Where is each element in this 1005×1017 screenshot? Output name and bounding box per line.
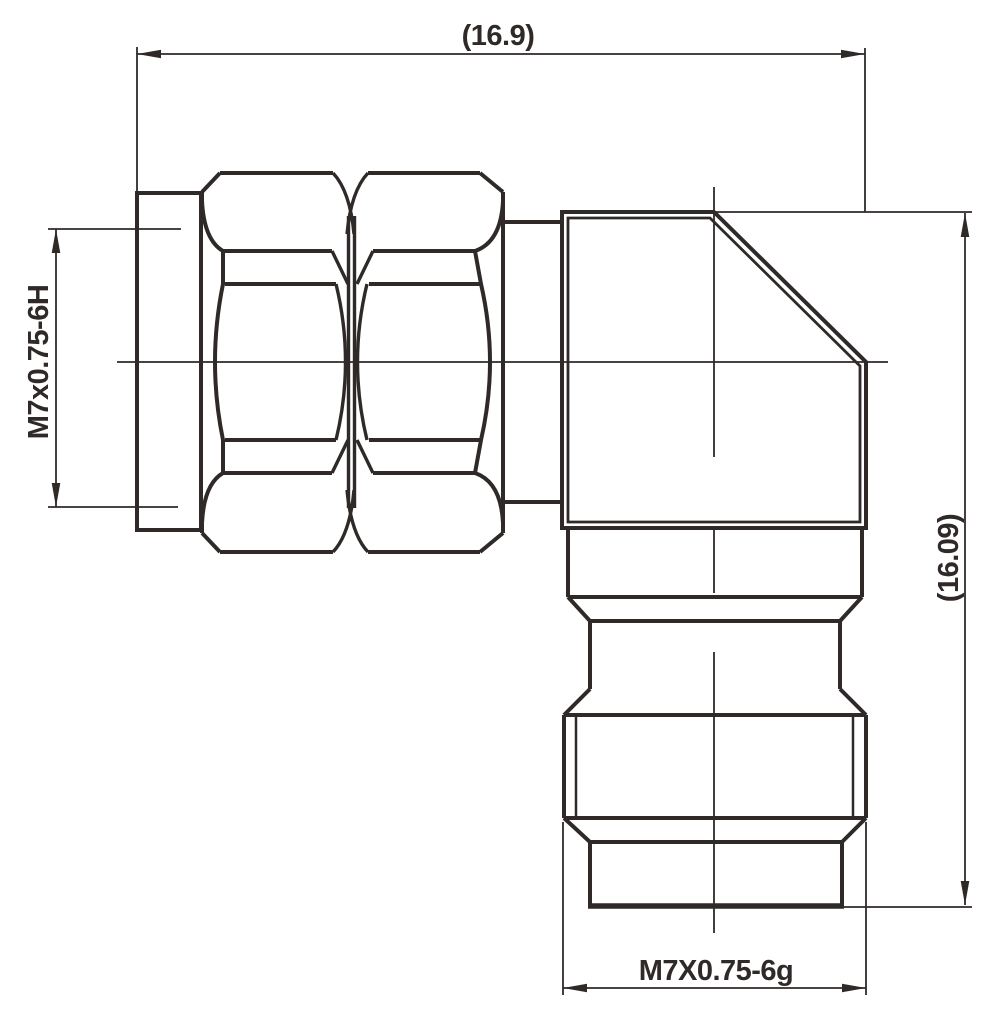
lower-taper — [568, 597, 862, 621]
arrow-bottom-left-icon — [563, 984, 587, 993]
arrow-top-right-icon — [841, 50, 865, 59]
dim-label-top-width: (16.9) — [462, 20, 535, 52]
arrow-right-up-icon — [961, 213, 970, 237]
arrow-bottom-right-icon — [842, 984, 866, 993]
tip-barrel-sides — [590, 842, 842, 906]
arrow-left-up-icon — [52, 229, 61, 253]
dim-label-left-thread: M7x0.75-6H — [23, 285, 55, 440]
dim-label-right-height: (16.09) — [933, 514, 965, 602]
technical-drawing-page: (16.9) M7x0.75-6H (16.09) M7X0.75-6g — [0, 0, 1005, 1017]
drawing-canvas: (16.9) M7x0.75-6H (16.09) M7X0.75-6g — [0, 0, 1005, 1017]
arrow-left-down-icon — [52, 483, 61, 507]
thread-end-chamfer — [564, 818, 866, 842]
thread-ring-outline — [564, 715, 866, 818]
lower-cylinder-upper — [568, 528, 862, 597]
bottom-connector-group — [564, 528, 866, 906]
dim-label-bottom-thread: M7X0.75-6g — [639, 955, 794, 987]
hex-junction-top-cross — [333, 173, 368, 234]
lower-flare — [564, 689, 866, 715]
lower-neck — [590, 621, 840, 689]
arrow-right-down-icon — [961, 881, 970, 905]
hex-junction-bottom-cross — [333, 490, 368, 552]
arrow-top-left-icon — [137, 50, 161, 59]
